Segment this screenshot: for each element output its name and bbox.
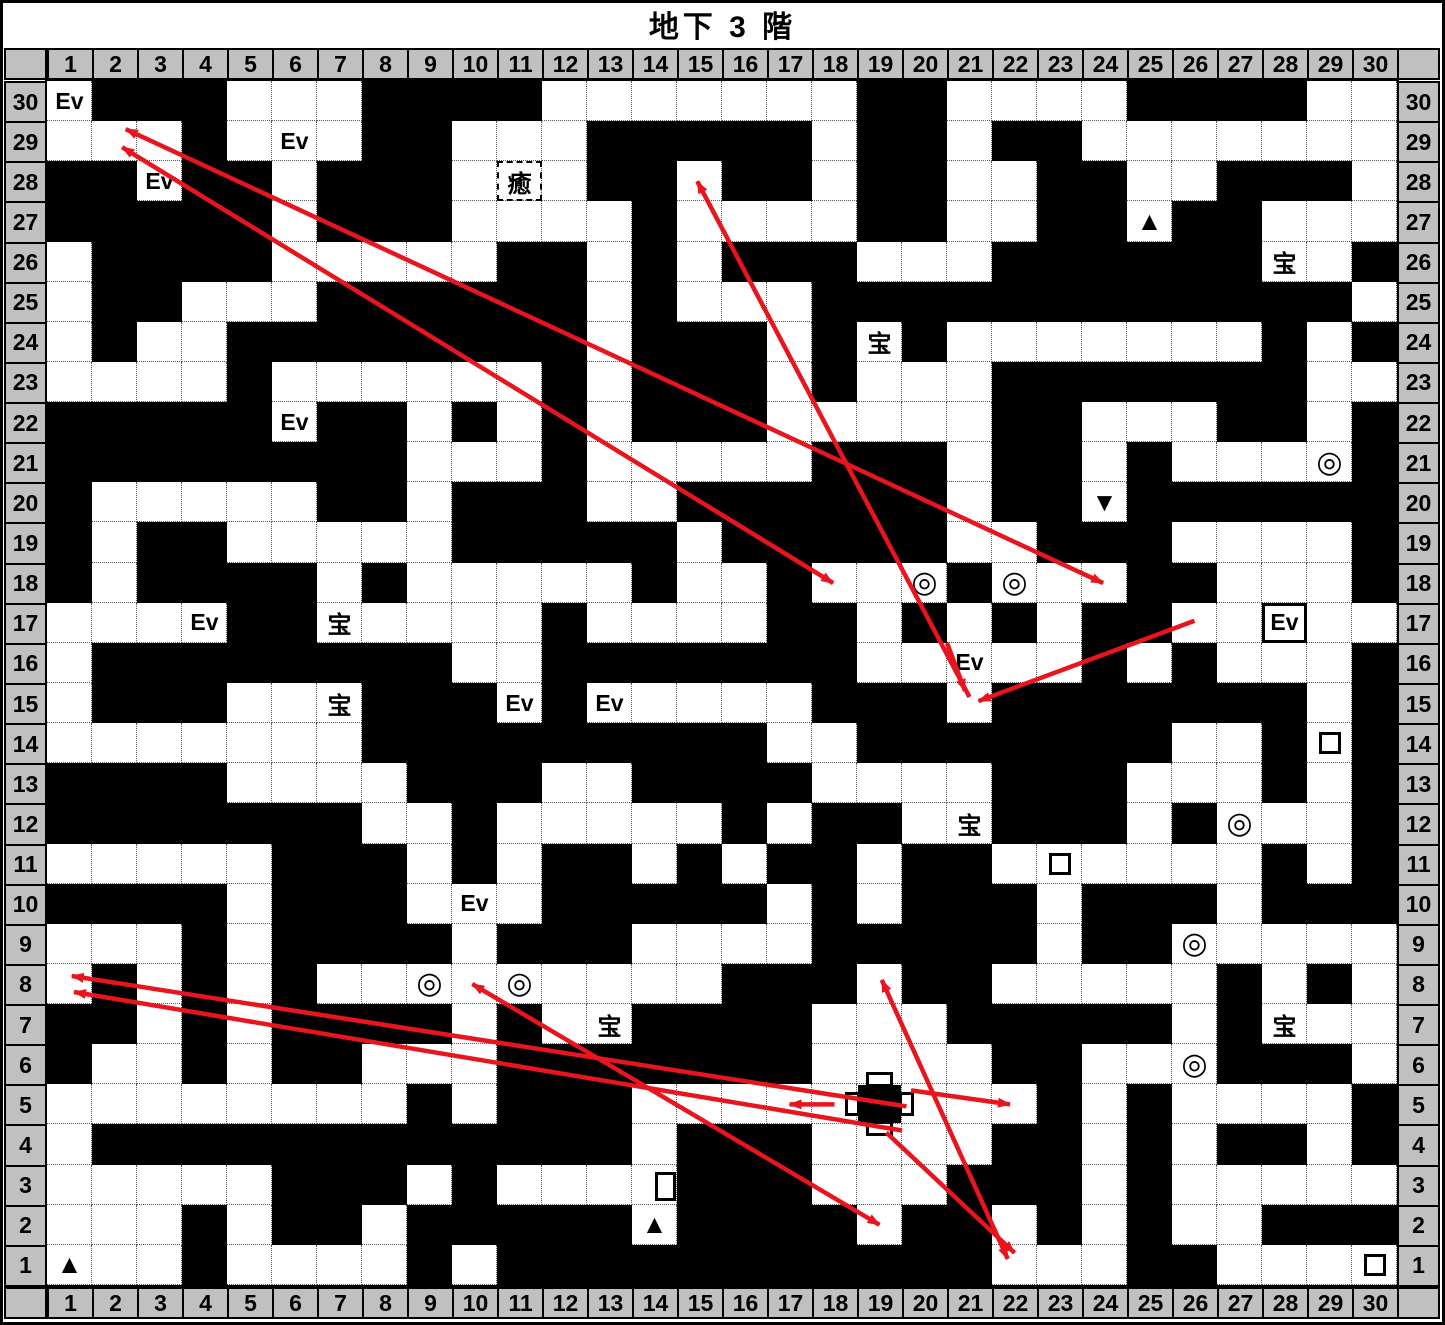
floor-cell: [92, 1205, 137, 1245]
wall-cell: [47, 201, 92, 241]
wall-cell: [1172, 242, 1217, 282]
wall-cell: [677, 1165, 722, 1205]
floor-cell: [137, 1044, 182, 1084]
wall-cell: [182, 964, 227, 1004]
wall-cell: [992, 763, 1037, 803]
floor-cell: [812, 161, 857, 201]
floor-cell: [227, 522, 272, 562]
wall-cell: [542, 442, 587, 482]
wall-cell: [677, 643, 722, 683]
wall-cell: [1352, 683, 1397, 723]
wall-cell: [857, 442, 902, 482]
floor-cell: [497, 563, 542, 603]
wall-cell: [317, 1004, 362, 1044]
col-header-cell: 11: [497, 1287, 544, 1319]
wall-cell: [767, 1165, 812, 1205]
floor-cell: [1082, 1165, 1127, 1205]
wall-cell: [992, 803, 1037, 843]
floor-cell: [47, 723, 92, 763]
corner-cell: [1397, 48, 1440, 80]
wall-cell: [407, 924, 452, 964]
floor-cell: [587, 81, 632, 121]
wall-cell: [272, 322, 317, 362]
floor-cell: [1172, 1124, 1217, 1164]
floor-cell: [767, 924, 812, 964]
wall-cell: [992, 1044, 1037, 1084]
floor-cell: [992, 201, 1037, 241]
wall-cell: [1037, 121, 1082, 161]
wall-cell: [812, 242, 857, 282]
marker-treasure: 宝: [587, 1004, 632, 1044]
wall-cell: [677, 121, 722, 161]
floor-cell: [407, 844, 452, 884]
wall-cell: [182, 522, 227, 562]
floor-cell: [1307, 81, 1352, 121]
marker-square: [1352, 1245, 1397, 1285]
wall-cell: [947, 1165, 992, 1205]
wall-cell: [1127, 282, 1172, 322]
floor-cell: [137, 964, 182, 1004]
row-header-cell: 2: [4, 1205, 47, 1247]
floor-cell: [1262, 643, 1307, 683]
floor-cell: [767, 683, 812, 723]
wall-cell: [362, 81, 407, 121]
floor-cell: [947, 1084, 992, 1124]
wall-cell: [497, 482, 542, 522]
col-header-cell: 25: [1127, 48, 1174, 80]
wall-cell: [632, 884, 677, 924]
floor-cell: [47, 844, 92, 884]
wall-cell: [272, 1124, 317, 1164]
wall-cell: [452, 322, 497, 362]
wall-cell: [677, 322, 722, 362]
wall-cell: [452, 723, 497, 763]
marker-event: Ev: [272, 121, 317, 161]
wall-cell: [272, 844, 317, 884]
floor-cell: [47, 1124, 92, 1164]
row-header-cell: 13: [1397, 763, 1440, 805]
wall-cell: [272, 1044, 317, 1084]
wall-cell: [542, 242, 587, 282]
floor-cell: [317, 1245, 362, 1285]
col-header-cell: 13: [587, 1287, 634, 1319]
floor-cell: [227, 1044, 272, 1084]
floor-cell: [497, 844, 542, 884]
wall-cell: [92, 643, 137, 683]
wall-cell: [317, 803, 362, 843]
wall-cell: [497, 1084, 542, 1124]
wall-cell: [992, 362, 1037, 402]
floor-cell: [182, 844, 227, 884]
wall-cell: [947, 884, 992, 924]
wall-cell: [227, 563, 272, 603]
wall-cell: [812, 362, 857, 402]
floor-cell: [1172, 844, 1217, 884]
wall-cell: [992, 121, 1037, 161]
wall-cell: [542, 282, 587, 322]
wall-cell: [992, 924, 1037, 964]
floor-cell: [227, 121, 272, 161]
col-header-cell: 1: [47, 1287, 94, 1319]
wall-cell: [587, 121, 632, 161]
wall-cell: [497, 522, 542, 562]
floor-cell: [947, 522, 992, 562]
wall-cell: [767, 643, 812, 683]
wall-cell: [1217, 1004, 1262, 1044]
wall-cell: [137, 402, 182, 442]
floor-cell: [182, 282, 227, 322]
floor-cell: [1307, 603, 1352, 643]
wall-cell: [722, 964, 767, 1004]
wall-cell: [182, 1044, 227, 1084]
floor-cell: [272, 362, 317, 402]
floor-cell: [1262, 1084, 1307, 1124]
wall-cell: [812, 282, 857, 322]
row-header-cell: 4: [4, 1124, 47, 1166]
floor-cell: [92, 482, 137, 522]
col-header-cell: 29: [1307, 1287, 1354, 1319]
wall-cell: [1262, 161, 1307, 201]
row-header-cell: 22: [4, 402, 47, 444]
floor-cell: [407, 563, 452, 603]
row-header-cell: 17: [4, 603, 47, 645]
floor-cell: [1217, 1165, 1262, 1205]
wall-cell: [227, 1124, 272, 1164]
wall-cell: [542, 1084, 587, 1124]
wall-cell: [1127, 442, 1172, 482]
wall-cell: [542, 322, 587, 362]
floor-cell: [677, 161, 722, 201]
floor-cell: [587, 603, 632, 643]
floor-cell: [812, 1124, 857, 1164]
floor-cell: [1127, 763, 1172, 803]
floor-cell: [812, 121, 857, 161]
floor-cell: [542, 121, 587, 161]
marker-treasure: 宝: [1262, 242, 1307, 282]
wall-cell: [1262, 844, 1307, 884]
wall-cell: [1037, 242, 1082, 282]
floor-cell: [47, 362, 92, 402]
row-header-cell: 29: [4, 121, 47, 163]
floor-cell: [1217, 603, 1262, 643]
wall-cell: [1172, 643, 1217, 683]
marker-double-circle: ◎: [992, 563, 1037, 603]
wall-cell: [1262, 884, 1307, 924]
wall-cell: [1082, 1004, 1127, 1044]
floor-cell: [1352, 362, 1397, 402]
row-header-cell: 25: [4, 282, 47, 324]
wall-cell: [857, 683, 902, 723]
floor-cell: [452, 362, 497, 402]
col-header-cell: 8: [362, 48, 409, 80]
floor-cell: [452, 563, 497, 603]
row-header-cell: 26: [1397, 242, 1440, 284]
row-header-cell: 11: [4, 844, 47, 886]
wall-cell: [1307, 161, 1352, 201]
floor-cell: [992, 1245, 1037, 1285]
wall-cell: [92, 763, 137, 803]
floor-cell: [1127, 161, 1172, 201]
wall-cell: [902, 964, 947, 1004]
wall-cell: [542, 643, 587, 683]
floor-cell: [227, 884, 272, 924]
floor-cell: [182, 362, 227, 402]
wall-cell: [182, 803, 227, 843]
wall-cell: [407, 322, 452, 362]
floor-cell: [947, 121, 992, 161]
row-header-cell: 23: [4, 362, 47, 404]
floor-cell: [902, 763, 947, 803]
floor-cell: [902, 803, 947, 843]
row-header-cell: 21: [1397, 442, 1440, 484]
wall-cell: [452, 1205, 497, 1245]
wall-cell: [272, 1205, 317, 1245]
wall-cell: [632, 402, 677, 442]
col-header-cell: 5: [227, 1287, 274, 1319]
wall-cell: [1127, 1124, 1172, 1164]
row-header-cell: 28: [4, 161, 47, 203]
floor-cell: [1307, 402, 1352, 442]
floor-cell: [182, 1165, 227, 1205]
wall-cell: [812, 522, 857, 562]
wall-cell: [47, 1044, 92, 1084]
row-header-cell: 8: [4, 964, 47, 1006]
floor-cell: [47, 282, 92, 322]
wall-cell: [947, 1205, 992, 1245]
wall-cell: [722, 1205, 767, 1245]
row-header-cell: 19: [1397, 522, 1440, 564]
wall-cell: [452, 803, 497, 843]
row-header-cell: 8: [1397, 964, 1440, 1006]
wall-cell: [902, 201, 947, 241]
wall-cell: [272, 442, 317, 482]
floor-cell: [407, 803, 452, 843]
row-header-cell: 19: [4, 522, 47, 564]
floor-cell: [1307, 763, 1352, 803]
floor-cell: [1172, 763, 1217, 803]
wall-cell: [1352, 763, 1397, 803]
row-header-cell: 14: [4, 723, 47, 765]
col-header-cell: 16: [722, 1287, 769, 1319]
wall-cell: [857, 723, 902, 763]
wall-cell: [542, 884, 587, 924]
floor-cell: [227, 964, 272, 1004]
wall-cell: [542, 844, 587, 884]
floor-cell: [47, 322, 92, 362]
wall-cell: [1037, 1044, 1082, 1084]
wall-cell: [992, 282, 1037, 322]
row-header-cell: 20: [1397, 482, 1440, 524]
wall-cell: [1082, 723, 1127, 763]
wall-cell: [317, 442, 362, 482]
floor-cell: [317, 81, 362, 121]
wall-cell: [317, 1205, 362, 1245]
wall-cell: [227, 362, 272, 402]
wall-cell: [767, 603, 812, 643]
wall-cell: [767, 1205, 812, 1245]
floor-cell: [137, 1084, 182, 1124]
floor-cell: [767, 362, 812, 402]
wall-cell: [407, 121, 452, 161]
floor-cell: [1307, 322, 1352, 362]
wall-cell: [992, 242, 1037, 282]
wall-cell: [767, 964, 812, 1004]
floor-cell: [722, 442, 767, 482]
floor-cell: [272, 522, 317, 562]
floor-cell: [362, 1084, 407, 1124]
wall-cell: [677, 723, 722, 763]
col-header-cell: 27: [1217, 48, 1264, 80]
wall-cell: [182, 1205, 227, 1245]
wall-cell: [587, 884, 632, 924]
floor-cell: [722, 844, 767, 884]
wall-cell: [1307, 1205, 1352, 1245]
wall-cell: [182, 402, 227, 442]
wall-cell: [1307, 282, 1352, 322]
wall-cell: [632, 1004, 677, 1044]
wall-cell: [182, 161, 227, 201]
floor-cell: [92, 1165, 137, 1205]
floor-cell: [362, 964, 407, 1004]
wall-cell: [542, 603, 587, 643]
wall-cell: [902, 683, 947, 723]
floor-cell: [47, 643, 92, 683]
wall-cell: [722, 242, 767, 282]
wall-cell: [1127, 1165, 1172, 1205]
square-icon: [1364, 1254, 1386, 1276]
wall-cell: [722, 643, 767, 683]
col-header-cell: 3: [137, 48, 184, 80]
wall-cell: [182, 924, 227, 964]
floor-cell: [677, 442, 722, 482]
floor-cell: [1307, 1165, 1352, 1205]
floor-cell: [227, 844, 272, 884]
floor-cell: [1037, 81, 1082, 121]
floor-cell: [407, 242, 452, 282]
wall-cell: [632, 362, 677, 402]
wall-cell: [1127, 1205, 1172, 1245]
floor-cell: [497, 121, 542, 161]
floor-cell: [632, 442, 677, 482]
floor-cell: [272, 763, 317, 803]
floor-cell: [272, 161, 317, 201]
wall-cell: [1127, 683, 1172, 723]
floor-cell: [47, 964, 92, 1004]
wall-cell: [92, 322, 137, 362]
floor-cell: [857, 563, 902, 603]
floor-cell: [227, 763, 272, 803]
wall-cell: [722, 362, 767, 402]
marker-double-circle: ◎: [1217, 803, 1262, 843]
floor-cell: [137, 1165, 182, 1205]
wall-cell: [812, 1205, 857, 1245]
floor-cell: [227, 1245, 272, 1285]
floor-cell: [1262, 522, 1307, 562]
wall-cell: [272, 924, 317, 964]
floor-cell: [677, 563, 722, 603]
col-header-cell: 7: [317, 1287, 364, 1319]
wall-cell: [1217, 362, 1262, 402]
wall-cell: [317, 643, 362, 683]
wall-cell: [1307, 884, 1352, 924]
floor-cell: [542, 201, 587, 241]
wall-cell: [1127, 723, 1172, 763]
wall-cell: [317, 201, 362, 241]
floor-cell: [317, 362, 362, 402]
wall-cell: [1352, 402, 1397, 442]
row-header-cell: 16: [1397, 643, 1440, 685]
floor-cell: [137, 924, 182, 964]
wall-cell: [992, 402, 1037, 442]
floor-cell: [677, 964, 722, 1004]
floor-cell: [137, 322, 182, 362]
corner-cell: [4, 48, 47, 80]
row-header-cell: 29: [1397, 121, 1440, 163]
marker-event: Ev: [587, 683, 632, 723]
wall-cell: [92, 402, 137, 442]
row-header-cell: 25: [1397, 282, 1440, 324]
col-header-cell: 29: [1307, 48, 1354, 80]
floor-cell: [47, 1205, 92, 1245]
marker-event: Ev: [497, 683, 542, 723]
wall-cell: [272, 1165, 317, 1205]
wall-cell: [92, 201, 137, 241]
wall-cell: [47, 1004, 92, 1044]
floor-cell: [1172, 121, 1217, 161]
wall-cell: [137, 683, 182, 723]
floor-cell: [137, 1205, 182, 1245]
wall-cell: [857, 1245, 902, 1285]
wall-cell: [227, 322, 272, 362]
col-header-cell: 16: [722, 48, 769, 80]
wall-cell: [182, 1124, 227, 1164]
col-header-cell: 15: [677, 48, 724, 80]
wall-cell: [407, 1004, 452, 1044]
floor-cell: [587, 964, 632, 1004]
floor-cell: [902, 1004, 947, 1044]
floor-cell: [137, 1245, 182, 1285]
wall-cell: [812, 442, 857, 482]
marker-double-circle: ◎: [407, 964, 452, 1004]
col-header-cell: 8: [362, 1287, 409, 1319]
wall-cell: [1217, 242, 1262, 282]
marker-shop: 店: [677, 844, 722, 884]
wall-cell: [317, 282, 362, 322]
floor-cell: [182, 322, 227, 362]
marker-event: Ev: [47, 81, 92, 121]
wall-cell: [407, 643, 452, 683]
wall-cell: [722, 803, 767, 843]
wall-cell: [362, 282, 407, 322]
floor-cell: [677, 282, 722, 322]
col-header-cell: 5: [227, 48, 274, 80]
wall-cell: [812, 884, 857, 924]
wall-cell: [137, 522, 182, 562]
wall-cell: [632, 121, 677, 161]
wall-cell: [182, 884, 227, 924]
floor-cell: [407, 522, 452, 562]
floor-cell: [1217, 924, 1262, 964]
row-header-cell: 10: [1397, 884, 1440, 926]
floor-cell: [407, 603, 452, 643]
floor-cell: [272, 482, 317, 522]
wall-cell: [632, 322, 677, 362]
col-header-cell: 1: [47, 48, 94, 80]
wall-cell: [902, 442, 947, 482]
wall-cell: [1037, 763, 1082, 803]
wall-cell: [767, 161, 812, 201]
wall-cell: [497, 242, 542, 282]
